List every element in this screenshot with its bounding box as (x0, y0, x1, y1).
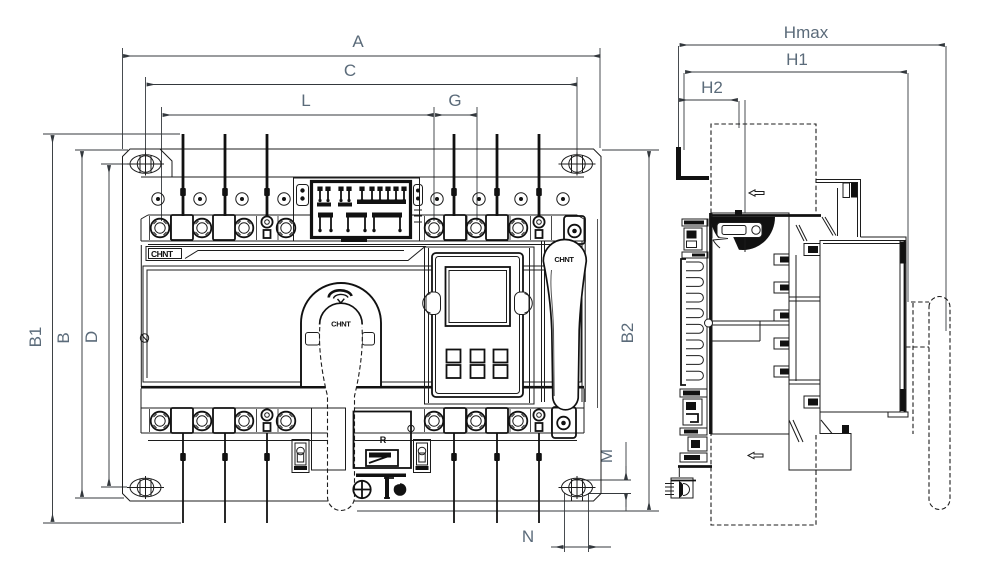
svg-text:C: C (344, 61, 356, 80)
svg-text:G: G (448, 91, 461, 110)
svg-text:A: A (352, 32, 364, 51)
svg-text:B: B (54, 332, 73, 343)
svg-text:CHNT: CHNT (331, 320, 351, 329)
svg-text:B1: B1 (26, 327, 45, 348)
svg-text:N: N (522, 527, 534, 546)
svg-text:CHNT: CHNT (554, 255, 574, 264)
svg-text:D: D (82, 331, 101, 343)
svg-text:R: R (380, 435, 387, 445)
svg-text:H2: H2 (701, 78, 723, 97)
svg-text:H1: H1 (786, 50, 808, 69)
svg-text:M: M (597, 449, 616, 463)
svg-text:Hmax: Hmax (784, 23, 829, 42)
svg-text:CHNT: CHNT (151, 249, 174, 259)
svg-text:B2: B2 (618, 323, 637, 344)
svg-text:L: L (301, 91, 310, 110)
